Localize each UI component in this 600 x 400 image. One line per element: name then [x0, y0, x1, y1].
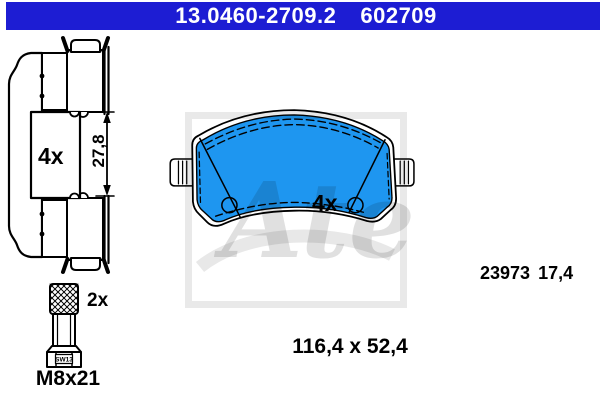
bolt-hex-head: SW13	[47, 346, 81, 367]
ate-brake-pad-product-image: 13.0460-2709.2 602709	[0, 0, 600, 400]
pad-thickness: 17,4	[538, 263, 573, 284]
bolt-size-label: M8x21	[28, 367, 108, 391]
bolt-quantity-label: 2x	[87, 290, 108, 312]
bolt-shank	[53, 314, 75, 347]
part-number-banner: 13.0460-2709.2 602709	[6, 2, 600, 30]
pad-quantity-label: 4x	[312, 190, 338, 217]
ear-right	[394, 159, 414, 186]
ear-left	[170, 159, 194, 186]
wva-number: 23973	[480, 263, 530, 284]
bolt-thread-section	[50, 284, 78, 314]
bolt-wrench-size-label: SW13	[55, 357, 73, 364]
wva-thickness-label: 23973 17,4	[480, 263, 573, 284]
part-number: 13.0460-2709.2	[175, 3, 336, 29]
side-view-bottom-pad-section	[42, 193, 109, 272]
side-view-dimension-label: 27,8	[89, 128, 107, 174]
side-view-drawing	[0, 35, 140, 280]
bolt-drawing: SW13	[30, 276, 130, 376]
friction-material	[196, 115, 392, 222]
side-view-quantity-label: 4x	[38, 143, 64, 170]
side-view-top-pad-section	[42, 38, 109, 117]
reference-number: 602709	[360, 3, 436, 29]
pad-dimensions-label: 116,4 x 52,4	[268, 335, 432, 359]
